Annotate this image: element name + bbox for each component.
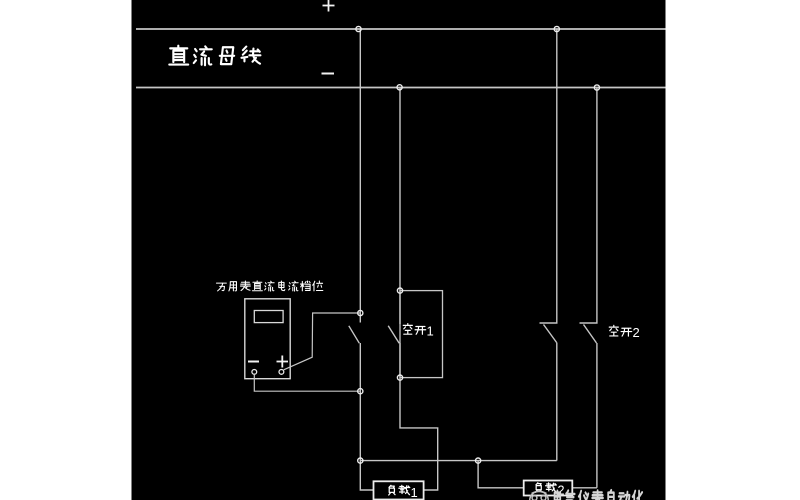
svg-text:1: 1 [427,323,434,338]
svg-text:2: 2 [633,325,640,340]
svg-text:1: 1 [411,485,418,500]
